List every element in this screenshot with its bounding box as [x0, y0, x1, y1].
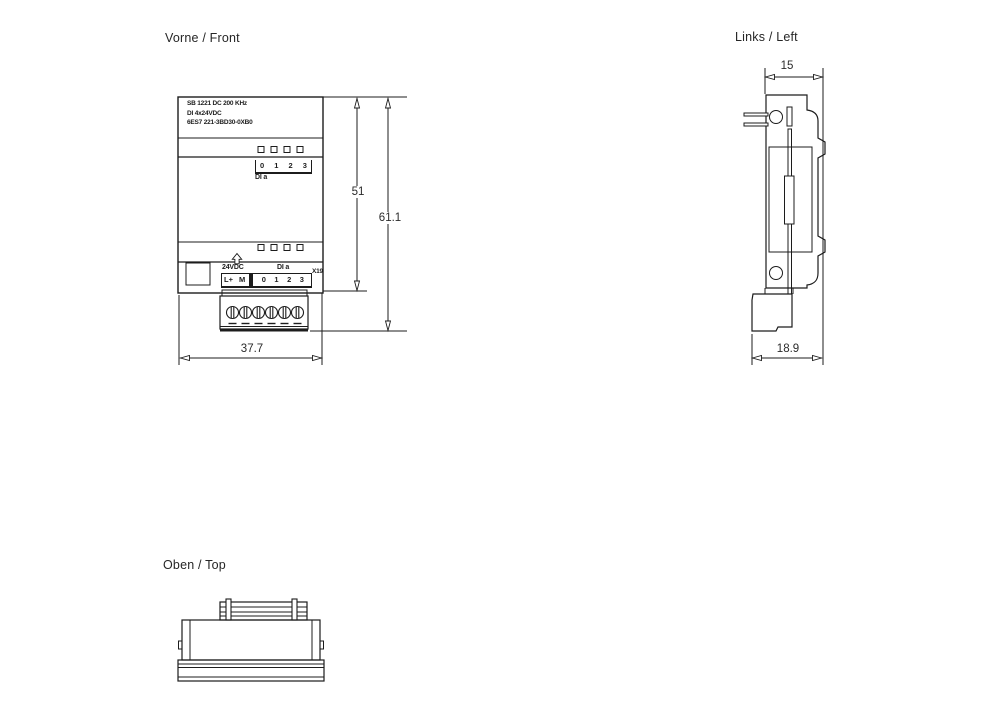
top-module-body — [182, 620, 320, 660]
dim-depth-body: 15 — [774, 60, 800, 72]
top-view-drawing — [178, 599, 324, 681]
module-nameplate: SB 1221 DC 200 KHz DI 4x24VDC 6ES7 221-3… — [187, 99, 253, 128]
left-view-title: Links / Left — [735, 30, 798, 44]
terminal-separator — [249, 274, 253, 286]
left-module-outline — [766, 95, 825, 288]
drawing-linework — [0, 0, 1000, 711]
terminal-block — [220, 290, 308, 331]
di-group-label: DI a — [255, 174, 267, 181]
connector-designator: X19 — [312, 268, 323, 275]
terminal-2: 2 — [287, 275, 291, 284]
front-view-drawing — [178, 97, 407, 365]
terminal-m: M — [239, 275, 245, 284]
nameplate-line-io: DI 4x24VDC — [187, 109, 253, 119]
dim-height-total: 61.1 — [375, 212, 405, 224]
top-view-title: Oben / Top — [163, 558, 226, 572]
terminal-0: 0 — [262, 275, 266, 284]
connector-pin-right — [292, 599, 297, 620]
terminal-1: 1 — [274, 275, 278, 284]
led-indicators-bottom — [258, 245, 303, 251]
di-group-label-terminals: DI a — [277, 264, 289, 271]
power-label: 24VDC — [222, 264, 244, 271]
dim-height-body: 51 — [345, 186, 371, 198]
nameplate-line-ordernumber: 6ES7 221-3BD30-0XB0 — [187, 118, 253, 128]
channel-2: 2 — [289, 161, 293, 170]
connector-pin-left — [226, 599, 231, 620]
nameplate-line-type: SB 1221 DC 200 KHz — [187, 99, 253, 109]
channel-number-box: 0 1 2 3 — [255, 160, 312, 174]
cover-square — [186, 263, 210, 285]
front-dimensions — [179, 97, 407, 365]
channel-1: 1 — [274, 161, 278, 170]
terminal-3: 3 — [300, 275, 304, 284]
front-view-title: Vorne / Front — [165, 31, 240, 45]
left-terminal-block — [752, 294, 792, 331]
dim-depth-total: 18.9 — [772, 343, 804, 355]
led-indicators-top — [258, 147, 303, 153]
dim-width: 37.7 — [236, 343, 268, 355]
channel-3: 3 — [303, 161, 307, 170]
terminal-screws — [227, 307, 304, 324]
top-front-face — [178, 660, 324, 681]
dimension-drawing-page: Vorne / Front Links / Left Oben / Top SB… — [0, 0, 1000, 711]
channel-0: 0 — [260, 161, 264, 170]
left-view-drawing — [744, 68, 825, 365]
terminal-label-strip: L+ M 0 1 2 3 — [221, 273, 312, 288]
terminal-lplus: L+ — [224, 275, 233, 284]
